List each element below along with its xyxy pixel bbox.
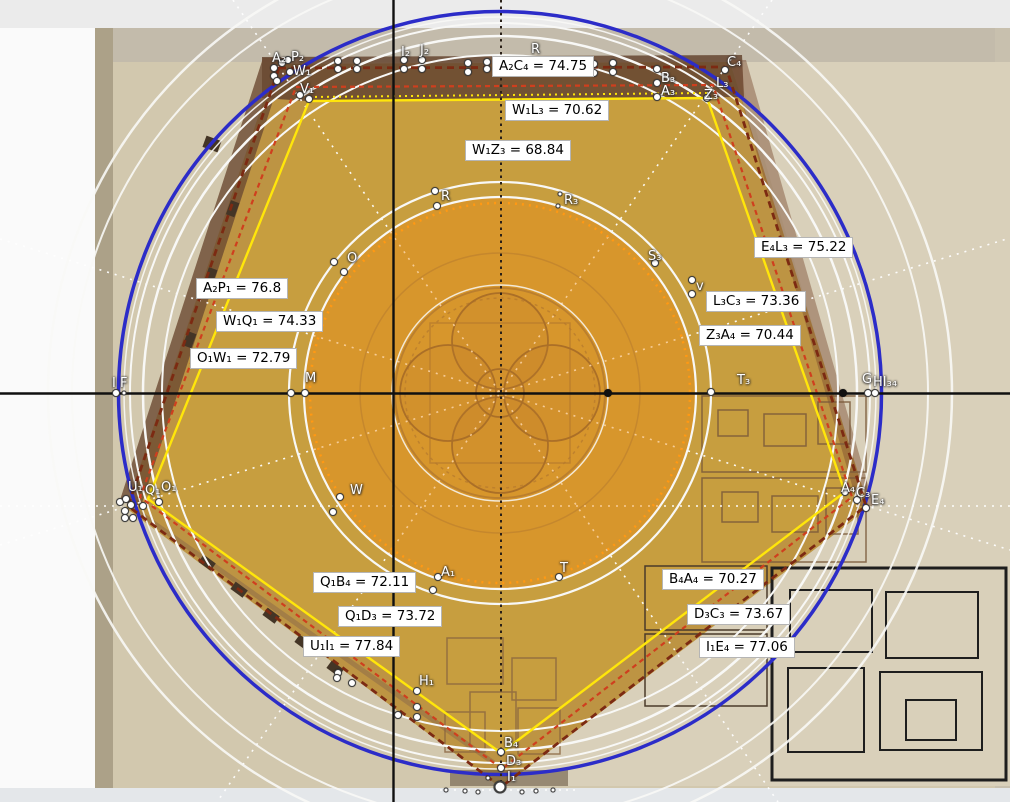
point-label: A₁: [441, 566, 455, 579]
geometry-point[interactable]: [463, 789, 468, 794]
measurement-label[interactable]: E₄L₃ = 75.22: [754, 237, 853, 258]
point-label: v: [696, 280, 704, 293]
point-label: T: [560, 562, 568, 575]
point-label: M: [305, 372, 316, 385]
point-label: P₂: [291, 51, 304, 64]
geometry-canvas[interactable]: I₂J₂RA₂P₂W₁V₁B₃A₃C₄L₃Z₃RR₃OS₃vMT₃I FGHI₃…: [0, 0, 1010, 802]
point-label: R₃: [564, 194, 578, 207]
geometry-point[interactable]: [433, 202, 441, 210]
measurement-label[interactable]: A₂P₁ = 76.8: [196, 278, 288, 299]
geometry-point[interactable]: [429, 586, 437, 594]
geometry-point[interactable]: [122, 391, 127, 396]
measurement-label[interactable]: W₁L₃ = 70.62: [505, 100, 609, 121]
geometry-point[interactable]: [273, 77, 281, 85]
geometry-point[interactable]: [334, 57, 342, 65]
point-label: R: [531, 43, 540, 56]
measurement-label[interactable]: O₁W₁ = 72.79: [190, 348, 297, 369]
geometry-point[interactable]: [413, 713, 421, 721]
geometry-point[interactable]: [431, 187, 439, 195]
geometry-point[interactable]: [340, 268, 348, 276]
geometry-point[interactable]: [348, 679, 356, 687]
geometry-point[interactable]: [534, 789, 539, 794]
point-label: S₃: [648, 250, 661, 263]
point-label: D₃: [506, 755, 521, 768]
geometry-point[interactable]: [604, 389, 612, 397]
geometry-point[interactable]: [558, 192, 563, 197]
geometry-point[interactable]: [839, 389, 847, 397]
point-label: U₁: [128, 481, 143, 494]
point-label: V₁: [300, 83, 314, 96]
measurement-label[interactable]: A₂C₄ = 74.75: [492, 56, 594, 77]
geometry-point[interactable]: [494, 781, 507, 794]
geometry-point[interactable]: [413, 703, 421, 711]
point-label: W: [350, 484, 363, 497]
geometry-point[interactable]: [333, 674, 341, 682]
measurement-label[interactable]: I₁E₄ = 77.06: [699, 637, 795, 658]
point-label: B₄: [504, 737, 518, 750]
point-label: C₄: [727, 56, 741, 69]
measurement-label[interactable]: D₃C₃ = 73.67: [687, 604, 790, 625]
geometry-point[interactable]: [688, 290, 696, 298]
point-label: T₃: [737, 374, 750, 387]
geometry-point[interactable]: [121, 514, 129, 522]
point-label: Z₃: [704, 89, 718, 102]
geometry-point[interactable]: [464, 59, 472, 67]
point-label: W₁: [293, 65, 311, 78]
point-label: A₂: [272, 52, 286, 65]
geometry-point[interactable]: [334, 65, 342, 73]
point-label: Q₁: [145, 484, 160, 497]
geometry-point[interactable]: [353, 57, 361, 65]
geometry-point[interactable]: [129, 514, 137, 522]
geometry-point[interactable]: [336, 493, 344, 501]
geometry-point[interactable]: [400, 65, 408, 73]
geometry-point[interactable]: [483, 65, 491, 73]
measurement-label[interactable]: W₁Z₃ = 68.84: [465, 140, 571, 161]
geometry-point[interactable]: [609, 59, 617, 67]
measurement-label[interactable]: Z₃A₄ = 70.44: [699, 325, 801, 346]
geometry-point[interactable]: [301, 389, 309, 397]
geometry-point[interactable]: [707, 388, 715, 396]
measurement-label[interactable]: W₁Q₁ = 74.33: [216, 311, 323, 332]
point-label: E₄: [871, 494, 884, 507]
geometry-point[interactable]: [287, 389, 295, 397]
geometry-point[interactable]: [556, 204, 561, 209]
geometry-point[interactable]: [418, 65, 426, 73]
measurement-label[interactable]: U₁I₁ = 77.84: [303, 636, 400, 657]
point-label: I F: [112, 377, 127, 390]
point-label: O₁: [161, 481, 176, 494]
point-label: A₃: [661, 85, 675, 98]
geometry-point[interactable]: [862, 504, 870, 512]
measurement-label[interactable]: B₄A₄ = 70.27: [662, 569, 764, 590]
point-label: J₂: [420, 44, 429, 57]
geometry-point[interactable]: [871, 389, 879, 397]
geometry-point[interactable]: [353, 65, 361, 73]
geometry-point[interactable]: [329, 508, 337, 516]
point-label: G: [862, 373, 872, 386]
geometry-point[interactable]: [551, 788, 556, 793]
geometry-point[interactable]: [653, 93, 661, 101]
point-label: HI₃₄: [873, 376, 897, 389]
geometry-point[interactable]: [476, 790, 481, 795]
point-label: A₄: [841, 482, 855, 495]
measurement-label[interactable]: Q₁D₃ = 73.72: [338, 606, 442, 627]
geometry-point[interactable]: [139, 502, 147, 510]
overlay-layer: I₂J₂RA₂P₂W₁V₁B₃A₃C₄L₃Z₃RR₃OS₃vMT₃I FGHI₃…: [0, 0, 1010, 802]
geometry-point[interactable]: [520, 790, 525, 795]
measurement-label[interactable]: L₃C₃ = 73.36: [706, 291, 806, 312]
geometry-point[interactable]: [486, 776, 491, 781]
point-label: R: [441, 190, 450, 203]
geometry-point[interactable]: [155, 498, 163, 506]
measurement-label[interactable]: Q₁B₄ = 72.11: [313, 572, 416, 593]
geometry-point[interactable]: [330, 258, 338, 266]
point-label: I₂: [401, 46, 410, 59]
geometry-point[interactable]: [609, 68, 617, 76]
geometry-point[interactable]: [653, 65, 661, 73]
point-label: O: [347, 252, 357, 265]
geometry-point[interactable]: [688, 276, 696, 284]
geometry-point[interactable]: [444, 788, 449, 793]
point-label: C₃: [856, 487, 870, 500]
geometry-point[interactable]: [464, 68, 472, 76]
geometry-point[interactable]: [497, 764, 505, 772]
geometry-point[interactable]: [394, 711, 402, 719]
geometry-point[interactable]: [653, 79, 661, 87]
point-label: H₁: [419, 675, 434, 688]
point-label: I₁: [507, 771, 516, 784]
